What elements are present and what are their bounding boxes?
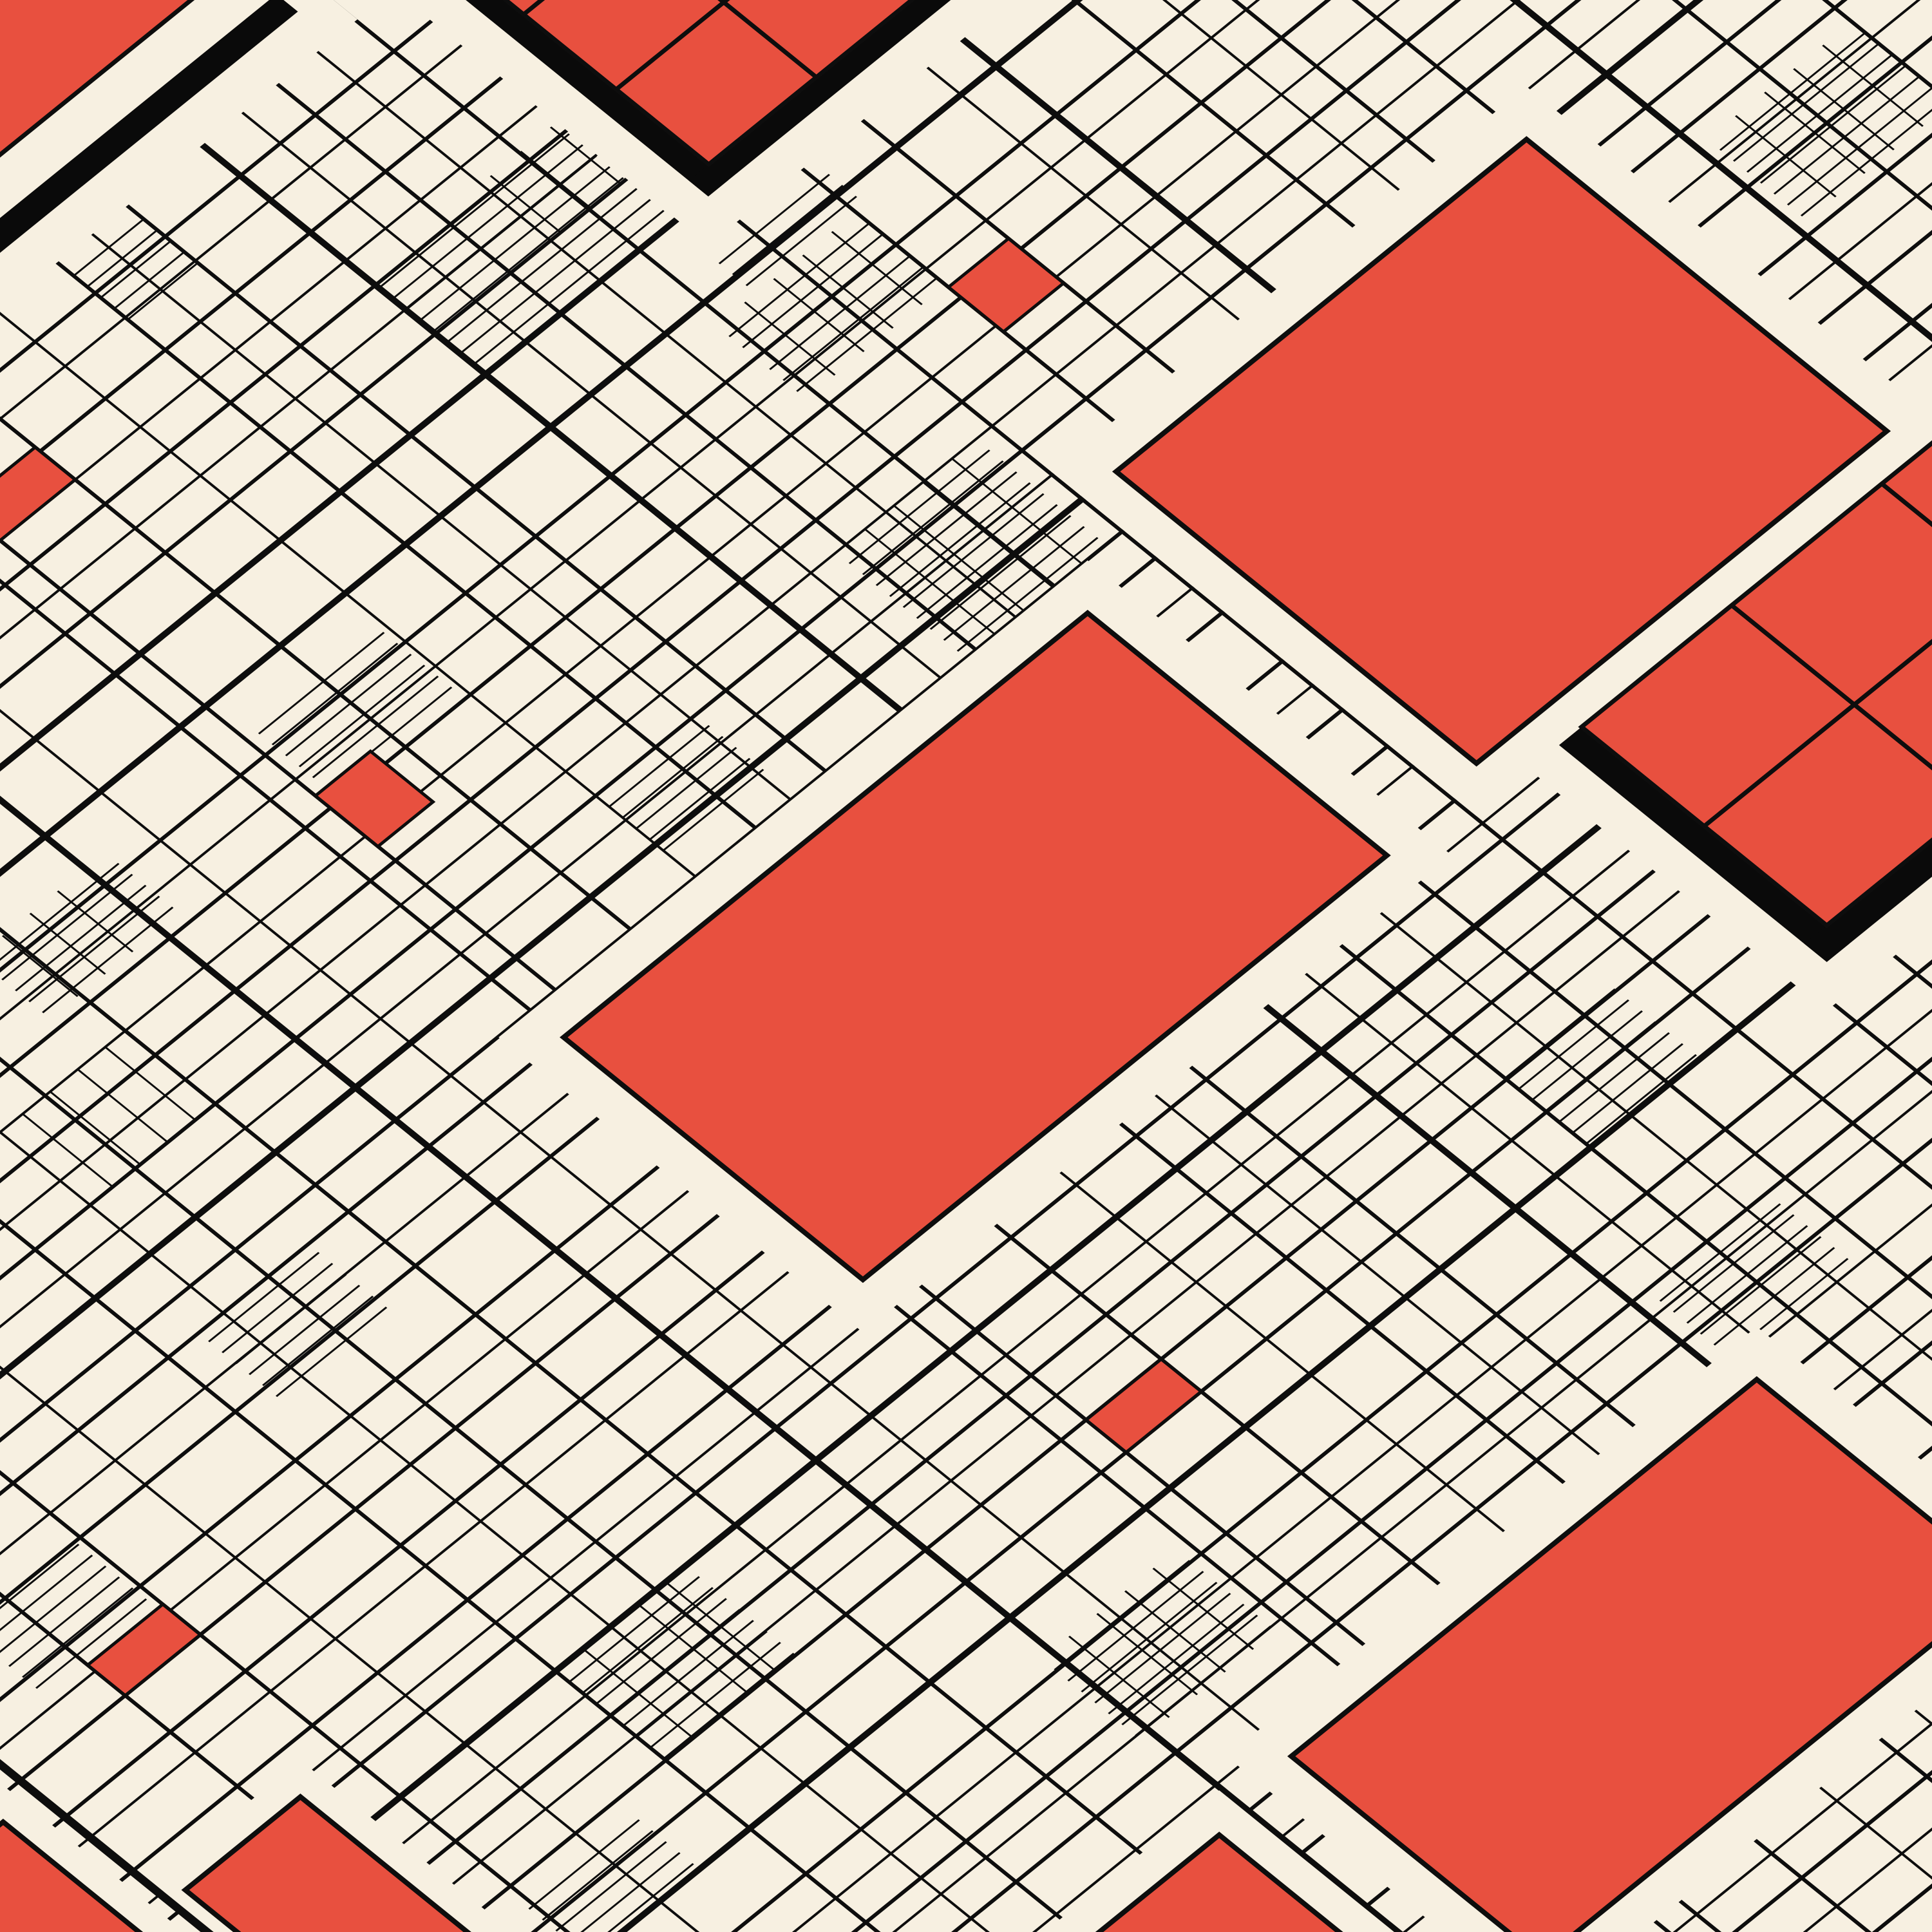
artwork: [0, 0, 1932, 1932]
oblique-grid-group: [0, 0, 1932, 1932]
pattern-canvas: [0, 0, 1932, 1932]
